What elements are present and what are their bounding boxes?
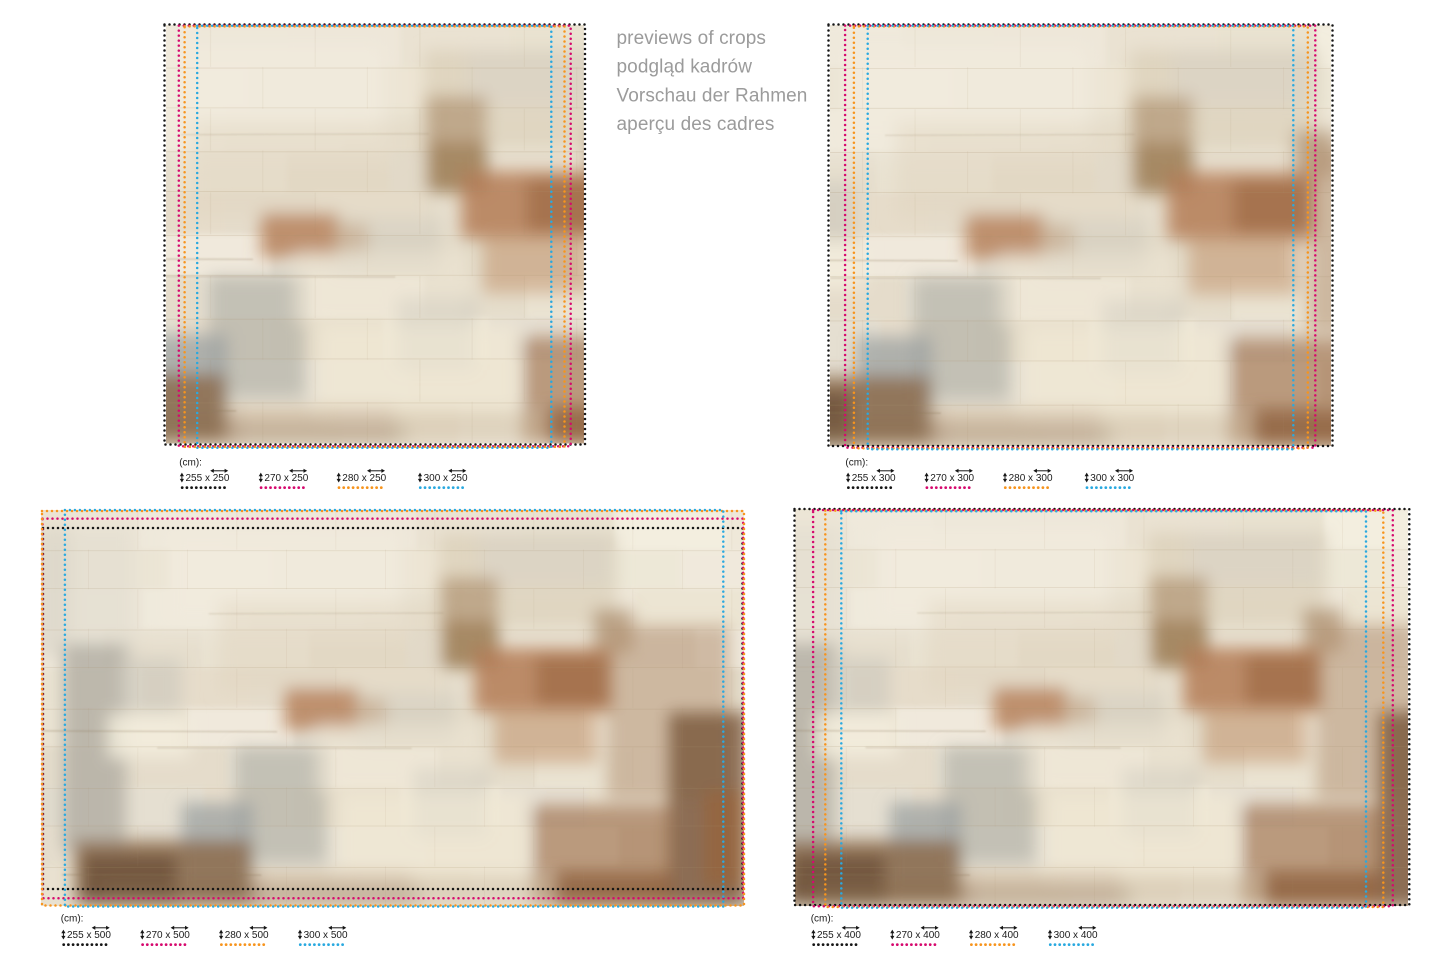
svg-text:270 x 250: 270 x 250 [264,473,308,484]
svg-text:(cm):: (cm): [179,458,202,469]
svg-text:(cm):: (cm): [811,914,834,925]
svg-text:270 x 300: 270 x 300 [930,473,974,484]
svg-text:(cm):: (cm): [61,914,84,925]
svg-text:Vorschau der Rahmen: Vorschau der Rahmen [617,85,808,106]
svg-text:280 x 250: 280 x 250 [342,473,386,484]
svg-text:300 x 250: 300 x 250 [424,473,468,484]
svg-text:255 x 300: 255 x 300 [852,473,896,484]
svg-text:300 x 300: 300 x 300 [1090,473,1134,484]
svg-text:280 x 500: 280 x 500 [225,930,269,941]
svg-text:(cm):: (cm): [845,458,868,469]
svg-text:255 x 500: 255 x 500 [67,930,111,941]
svg-text:255 x 400: 255 x 400 [817,930,861,941]
svg-text:255 x 250: 255 x 250 [186,473,230,484]
svg-text:270 x 500: 270 x 500 [146,930,190,941]
svg-text:300 x 400: 300 x 400 [1054,930,1098,941]
svg-text:300 x 500: 300 x 500 [304,930,348,941]
svg-text:280 x 300: 280 x 300 [1009,473,1053,484]
svg-text:podgląd kadrów: podgląd kadrów [617,57,753,78]
svg-text:280 x 400: 280 x 400 [975,930,1019,941]
svg-text:270 x 400: 270 x 400 [896,930,940,941]
svg-text:aperçu des cadres: aperçu des cadres [617,114,775,135]
svg-text:previews of crops: previews of crops [617,28,767,49]
